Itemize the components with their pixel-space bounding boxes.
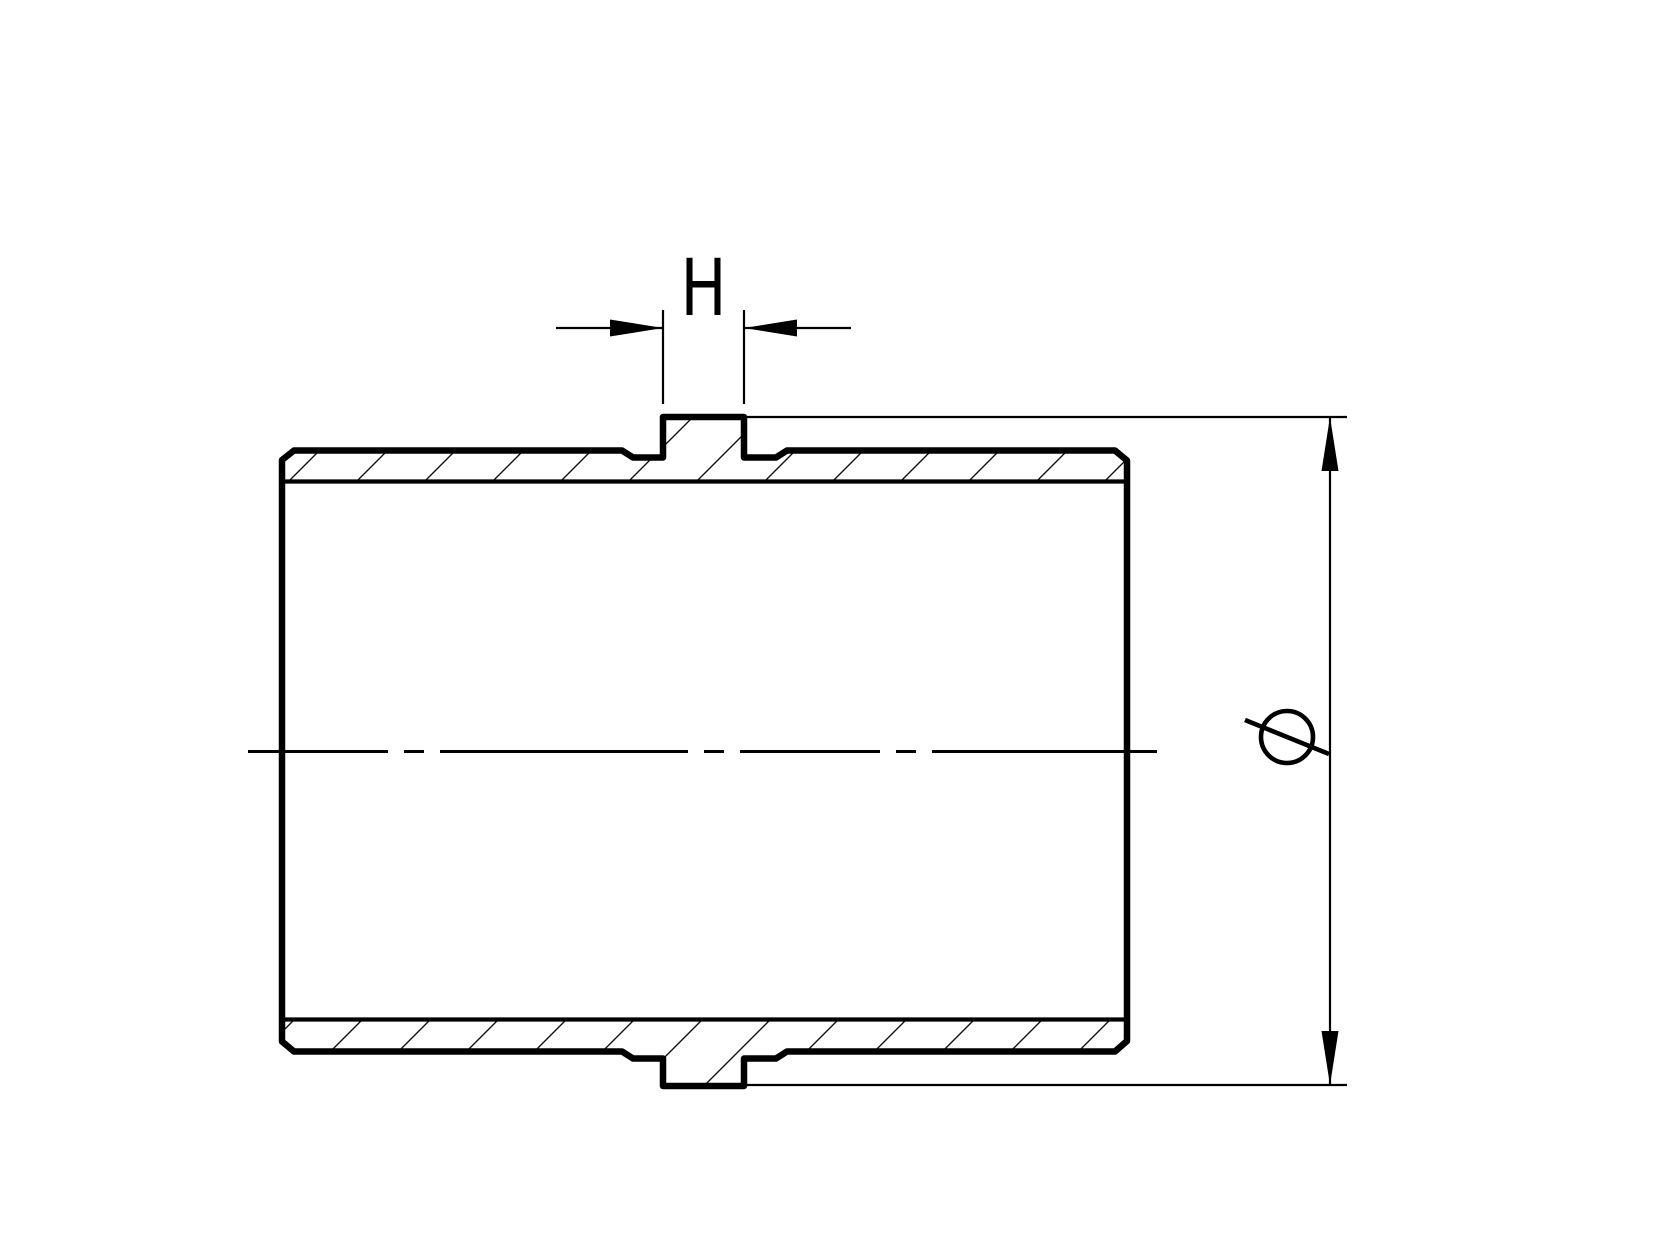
technical-drawing: H bbox=[0, 0, 1680, 1260]
drawing-canvas: H bbox=[0, 0, 1680, 1260]
h-dimension-label: H bbox=[681, 244, 727, 334]
sheet-background bbox=[0, 0, 1680, 1260]
